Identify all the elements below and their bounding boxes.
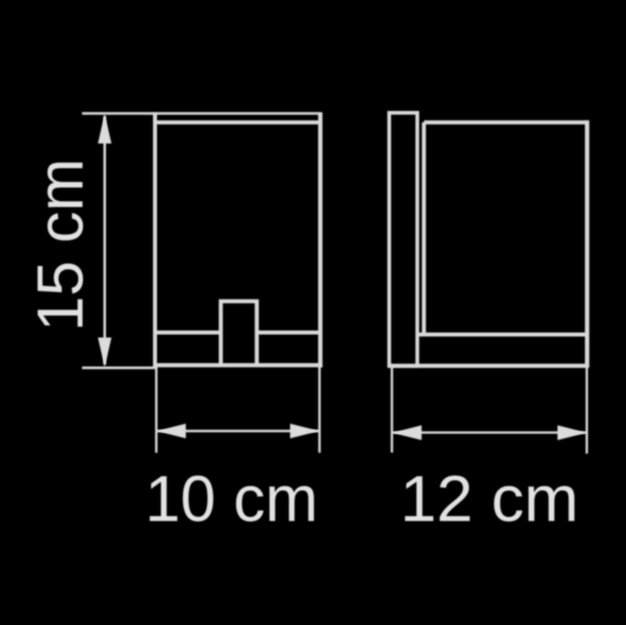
svg-text:10 cm: 10 cm — [145, 462, 318, 535]
svg-text:12 cm: 12 cm — [400, 462, 579, 535]
svg-text:15 cm: 15 cm — [24, 158, 97, 331]
